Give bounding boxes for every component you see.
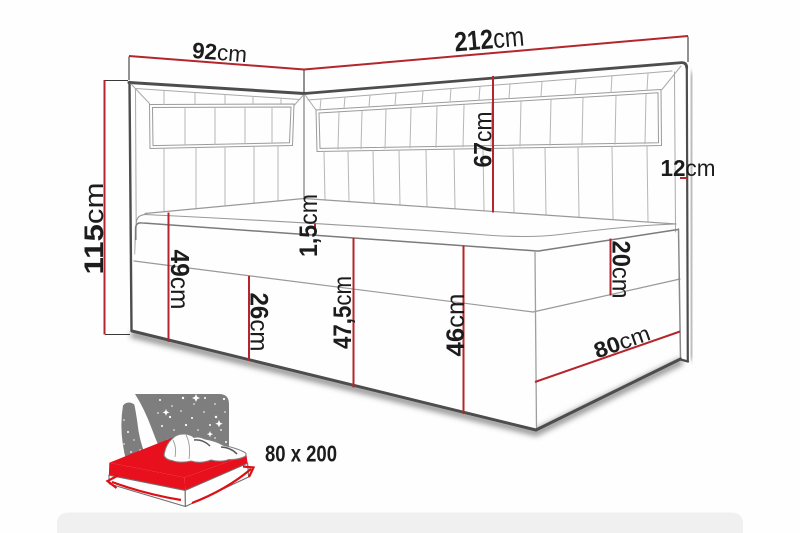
svg-text:26cm: 26cm xyxy=(245,293,273,352)
svg-text:46cm: 46cm xyxy=(442,294,470,357)
svg-text:12cm: 12cm xyxy=(661,155,716,181)
svg-text:49cm: 49cm xyxy=(165,250,195,310)
svg-text:47,5cm: 47,5cm xyxy=(329,276,357,349)
svg-text:67cm: 67cm xyxy=(470,112,498,168)
svg-text:20cm: 20cm xyxy=(607,241,635,299)
svg-text:115cm: 115cm xyxy=(79,183,109,275)
svg-text:212cm: 212cm xyxy=(453,21,525,58)
svg-text:80 x 200: 80 x 200 xyxy=(265,441,337,467)
svg-text:92cm: 92cm xyxy=(191,38,248,67)
svg-text:1,5cm: 1,5cm xyxy=(295,194,323,257)
